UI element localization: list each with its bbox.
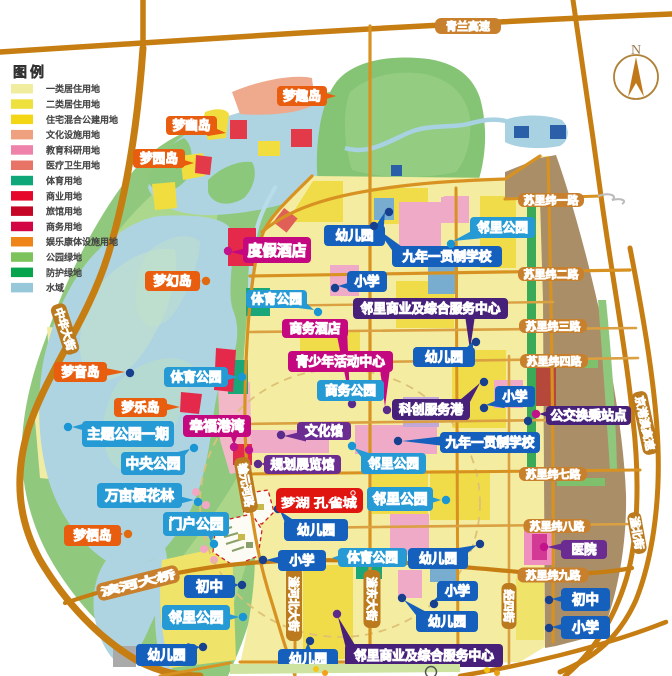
svg-text:水域: 水域 — [46, 282, 64, 293]
svg-text:娱乐康体设施用地: 娱乐康体设施用地 — [46, 236, 118, 247]
svg-text:门户公园: 门户公园 — [169, 516, 224, 532]
svg-text:梦幽岛: 梦幽岛 — [173, 118, 211, 133]
svg-text:邻里商业及综合服务中心: 邻里商业及综合服务中心 — [360, 301, 501, 316]
svg-text:商务用地: 商务用地 — [46, 221, 82, 232]
svg-text:邻里商业及综合服务中心: 邻里商业及综合服务中心 — [353, 648, 494, 663]
svg-text:科创服务港: 科创服务港 — [399, 402, 464, 417]
svg-text:梦湖 孔雀城: 梦湖 孔雀城 — [281, 495, 357, 510]
svg-text:幼儿园: 幼儿园 — [428, 614, 466, 629]
svg-text:万亩樱花林: 万亩樱花林 — [104, 488, 174, 504]
svg-text:文化馆: 文化馆 — [305, 424, 343, 439]
svg-text:医院: 医院 — [572, 542, 597, 557]
svg-text:九年一贯制学校: 九年一贯制学校 — [402, 249, 493, 264]
svg-text:青兰高速: 青兰高速 — [446, 19, 490, 33]
svg-text:梦音岛: 梦音岛 — [62, 365, 100, 380]
svg-text:幼儿园: 幼儿园 — [419, 551, 457, 566]
svg-text:梦栖岛: 梦栖岛 — [74, 528, 112, 543]
svg-text:经四街: 经四街 — [502, 590, 516, 623]
svg-text:梦园岛: 梦园岛 — [140, 151, 178, 166]
svg-text:旅馆用地: 旅馆用地 — [46, 206, 82, 217]
svg-text:小学: 小学 — [290, 553, 315, 568]
svg-text:苏里纬一路: 苏里纬一路 — [524, 193, 580, 207]
svg-text:中央公园: 中央公园 — [126, 456, 181, 472]
svg-text:苏里纬四路: 苏里纬四路 — [527, 354, 583, 368]
svg-text:公交换乘站点: 公交换乘站点 — [551, 408, 627, 423]
svg-text:度假酒店: 度假酒店 — [248, 241, 307, 259]
svg-text:苏里纬二路: 苏里纬二路 — [524, 267, 580, 281]
svg-text:小学: 小学 — [355, 274, 380, 289]
svg-text:住宅混合公建用地: 住宅混合公建用地 — [46, 114, 118, 125]
svg-text:幸福港湾: 幸福港湾 — [190, 418, 245, 434]
svg-text:滏东大街: 滏东大街 — [365, 577, 379, 621]
svg-text:体育公园: 体育公园 — [347, 550, 398, 565]
svg-text:初中: 初中 — [196, 579, 223, 595]
svg-text:青少年活动中心: 青少年活动中心 — [296, 354, 385, 369]
svg-text:幼儿园: 幼儿园 — [425, 350, 463, 365]
svg-text:医疗卫生用地: 医疗卫生用地 — [46, 160, 100, 171]
svg-text:主题公园一期: 主题公园一期 — [87, 426, 169, 442]
svg-text:幼儿园: 幼儿园 — [297, 523, 335, 538]
svg-text:商务公园: 商务公园 — [325, 383, 376, 398]
svg-text:邻里公园: 邻里公园 — [476, 220, 528, 235]
svg-text:梦幻岛: 梦幻岛 — [154, 274, 192, 289]
svg-text:小学: 小学 — [572, 620, 599, 636]
svg-text:文化设施用地: 文化设施用地 — [46, 129, 100, 140]
svg-text:体育公园: 体育公园 — [251, 292, 302, 307]
svg-text:幼儿园: 幼儿园 — [148, 648, 186, 663]
svg-text:苏里纬七路: 苏里纬七路 — [526, 467, 582, 481]
svg-text:N: N — [631, 43, 641, 58]
svg-text:教育科研用地: 教育科研用地 — [46, 144, 100, 155]
svg-text:商业用地: 商业用地 — [46, 190, 82, 201]
svg-text:苏里纬三路: 苏里纬三路 — [526, 319, 582, 333]
svg-text:商务酒店: 商务酒店 — [290, 321, 341, 336]
svg-text:苏里纬八路: 苏里纬八路 — [530, 519, 586, 533]
svg-text:小学: 小学 — [445, 584, 470, 599]
svg-text:二类居住用地: 二类居住用地 — [46, 99, 100, 110]
svg-text:初中: 初中 — [572, 592, 599, 608]
svg-text:幼儿园: 幼儿园 — [336, 228, 374, 243]
svg-text:规划展览馆: 规划展览馆 — [271, 457, 335, 472]
svg-text:梦趣岛: 梦趣岛 — [283, 89, 321, 104]
svg-text:一类居住用地: 一类居住用地 — [46, 83, 100, 94]
svg-text:邻里公园: 邻里公园 — [373, 491, 428, 507]
svg-text:公园绿地: 公园绿地 — [46, 252, 82, 263]
svg-text:图例: 图例 — [13, 64, 47, 80]
svg-text:体育用地: 体育用地 — [46, 175, 82, 186]
svg-text:邻里公园: 邻里公园 — [367, 456, 419, 471]
svg-text:九年一贯制学校: 九年一贯制学校 — [445, 435, 536, 450]
svg-text:体育公园: 体育公园 — [171, 370, 222, 385]
svg-text:小学: 小学 — [503, 389, 528, 404]
svg-text:苏里纬九路: 苏里纬九路 — [526, 568, 582, 582]
svg-text:滏河北大街: 滏河北大街 — [287, 577, 301, 632]
svg-text:防护绿地: 防护绿地 — [46, 267, 82, 278]
svg-text:梦乐岛: 梦乐岛 — [122, 400, 160, 415]
svg-text:邻里公园: 邻里公园 — [169, 610, 224, 626]
